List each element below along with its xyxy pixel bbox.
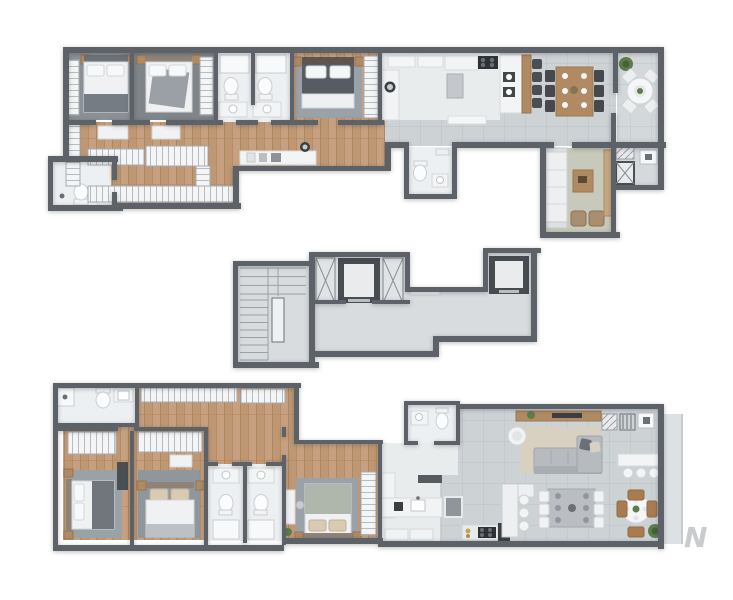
- u-bed1-blanket: [84, 94, 128, 112]
- core-walls-seg-1: [233, 261, 238, 368]
- u-plate-2: [562, 88, 568, 94]
- u-stove-burner-4: [490, 63, 494, 67]
- lower-walls-seg-22: [208, 462, 218, 466]
- u-bath2-shower: [256, 55, 286, 73]
- l-console-stool-2: [636, 468, 646, 478]
- lower-walls-seg-0: [53, 383, 301, 388]
- u-bath2-basin: [263, 105, 271, 113]
- l-kitchen-jar-2: [466, 534, 470, 538]
- u-bath1-toilet: [224, 78, 238, 95]
- l-bedB-fold: [146, 524, 194, 537]
- upper-walls-seg-7: [233, 166, 390, 171]
- u-bath2-toilet: [258, 78, 272, 95]
- l-kitchen-sink: [411, 500, 425, 511]
- l-plate-2: [555, 505, 561, 511]
- core-walls-seg-2: [233, 362, 319, 368]
- l-grill-box-glyph: [643, 417, 650, 424]
- l-console-stool-3: [649, 468, 659, 478]
- l-closet-top: [141, 388, 237, 402]
- lower-walls-seg-11: [434, 441, 460, 445]
- upper-walls-seg-29: [236, 120, 258, 125]
- l-wood-chair-top: [628, 490, 644, 500]
- u-bed2-headboard: [146, 55, 192, 62]
- core-walls-seg-3: [309, 252, 315, 367]
- u-kitchen-cabinet-1: [388, 56, 415, 67]
- u-bed1-bench: [98, 126, 128, 139]
- lower-walls-seg-6: [378, 440, 382, 543]
- l-bath1-toilet: [219, 495, 233, 512]
- l-wood-chair-left: [617, 501, 627, 517]
- l-bedB-closet: [138, 432, 202, 452]
- upper-walls-seg-33: [112, 192, 117, 208]
- lower-walls-seg-2: [53, 545, 284, 551]
- floorplan-canvas: N: [0, 0, 733, 600]
- l-dining-chair-5: [594, 504, 604, 515]
- l-kitchen-island: [445, 497, 462, 517]
- u-armchair-2: [589, 211, 604, 226]
- core-walls-seg-0: [233, 261, 314, 266]
- u-bar-stool-4: [532, 98, 542, 108]
- l-kitchen-jar-1: [466, 529, 471, 534]
- u-bath1-shower: [220, 55, 249, 73]
- u-kitchen-counter-left: [382, 70, 399, 120]
- l-bedA-nightstand-top: [64, 469, 73, 477]
- floorplan-scene: [48, 47, 683, 551]
- u-dining-chair-3: [545, 100, 555, 112]
- u-leftbath-drain: [60, 194, 65, 199]
- u-master-wardrobe: [364, 56, 378, 118]
- l-corner-plant-inner: [652, 528, 659, 535]
- u-bar-stool-2: [532, 72, 542, 82]
- u-kitchen-stove: [478, 56, 498, 69]
- u-master-pillow-2: [330, 66, 350, 78]
- upper-walls-seg-22: [214, 51, 218, 122]
- l-tv: [552, 413, 582, 418]
- l-stove-burner-4: [488, 533, 492, 537]
- u-bed1-pillow-1: [87, 65, 104, 76]
- lower-walls-seg-1: [53, 383, 58, 551]
- lower-walls-seg-13: [658, 404, 664, 549]
- l-wood-chair-right: [647, 501, 657, 517]
- lower-walls-seg-23: [232, 462, 252, 466]
- u-plate-3: [562, 102, 568, 108]
- u-bed2-nightstand-left: [137, 55, 146, 64]
- core-walls-seg-11: [407, 287, 488, 292]
- l-wood-chair-bottom: [628, 527, 644, 537]
- l-island-stool-3: [519, 521, 529, 531]
- upper-walls-seg-25: [251, 51, 255, 105]
- upper-walls-seg-12: [452, 142, 457, 199]
- upper-walls-seg-5: [115, 203, 241, 209]
- l-island-stool-1: [519, 495, 529, 505]
- upper-walls-seg-19: [613, 47, 618, 93]
- right-elevator-door: [499, 290, 519, 293]
- upper-walls-seg-3: [48, 156, 53, 211]
- u-stove-burner-3: [481, 63, 485, 67]
- l-round-plate-2: [634, 516, 639, 521]
- lower-walls-seg-26: [135, 385, 139, 425]
- u-master-nightstand-right: [355, 57, 364, 66]
- u-shaft-box-glyph: [645, 154, 652, 160]
- l-island-stool-2: [519, 508, 529, 518]
- l-hall-floor: [382, 443, 458, 475]
- u-plate-6: [581, 102, 587, 108]
- upper-walls-seg-16: [540, 232, 620, 238]
- l-dining-chair-4: [594, 491, 604, 502]
- upper-walls-seg-32: [112, 156, 117, 180]
- upper-walls-seg-28: [166, 120, 223, 125]
- upper-walls-seg-0: [63, 47, 664, 53]
- u-dining-chair-5: [594, 85, 604, 97]
- u-hall-closet-bottom: [88, 186, 234, 202]
- lower-walls-seg-15: [53, 427, 118, 431]
- lower-walls-seg-5: [282, 538, 383, 544]
- u-kitchen-cabinet-2: [418, 56, 443, 67]
- l-bath1-toilet-tank: [219, 510, 232, 515]
- elevator-door: [348, 299, 370, 302]
- l-sofa-pillow-2: [589, 441, 601, 453]
- u-kitchen-sink-basin: [387, 84, 393, 90]
- u-island-counter: [500, 55, 522, 113]
- l-master-wardrobe: [361, 472, 376, 535]
- right-elevator-interior: [495, 261, 523, 288]
- l-dining-chair-2: [539, 504, 549, 515]
- u-dining-chair-6: [594, 100, 604, 112]
- l-plate-3: [555, 517, 561, 523]
- l-dining-chair-6: [594, 517, 604, 528]
- upper-walls-seg-30: [271, 120, 318, 125]
- l-stove-burner-1: [480, 528, 484, 532]
- lower-walls-seg-24: [266, 462, 282, 466]
- l-terrace-strip: [663, 414, 682, 544]
- l-bedA-headboard: [66, 479, 72, 531]
- u-master-pillow-1: [306, 66, 326, 78]
- l-plate-6: [583, 517, 589, 523]
- lower-walls-seg-17: [130, 431, 134, 545]
- u-dining-chair-1: [545, 70, 555, 82]
- l-kitchen-appliance: [394, 502, 403, 511]
- u-plate-5: [581, 88, 587, 94]
- core-walls-seg-9: [433, 336, 537, 342]
- l-round-armchair-inner: [512, 431, 522, 441]
- l-laundry-basin: [118, 391, 129, 400]
- upper-walls-seg-4: [48, 205, 123, 211]
- core-walls-seg-13: [483, 248, 488, 292]
- lower-walls-seg-12: [456, 404, 663, 409]
- l-master-pillow-1: [309, 520, 326, 531]
- u-centerpiece: [570, 86, 578, 94]
- l-grill-hatch: [602, 414, 617, 430]
- floorplan-image: N: [0, 0, 733, 600]
- u-island-bartop: [522, 55, 531, 113]
- l-midbath-basin: [416, 414, 423, 421]
- l-bedA-dresser: [117, 462, 128, 490]
- upper-walls-seg-20: [611, 113, 616, 238]
- l-bedB-pillow-2: [171, 489, 189, 500]
- upper-walls-seg-17: [658, 47, 664, 190]
- l-stove-burner-3: [480, 533, 484, 537]
- u-hall-counter-item-1: [247, 153, 255, 162]
- l-plate-1: [555, 493, 561, 499]
- l-midbath-toilet-tank: [436, 408, 448, 413]
- lower-walls-seg-18: [204, 427, 208, 545]
- l-island-vertical: [502, 484, 518, 537]
- upper-walls-seg-13: [452, 142, 554, 148]
- l-laundry-drain: [63, 395, 68, 400]
- upper-walls-seg-23: [290, 51, 294, 125]
- u-island-basin-2: [506, 89, 512, 95]
- l-kitchen-shelf: [418, 475, 442, 483]
- u-hall-counter-item-2: [259, 153, 267, 162]
- l-bedB-nightstand-right: [196, 481, 205, 490]
- u-dining-chair-2: [545, 85, 555, 97]
- l-tv-plant: [527, 411, 535, 419]
- upper-walls-seg-14: [572, 142, 666, 148]
- lower-walls-seg-21: [282, 462, 286, 545]
- u-plate-4: [581, 73, 587, 79]
- l-bedB-pillow-1: [150, 489, 168, 500]
- l-laundry-toilet: [96, 392, 110, 408]
- lower-walls-seg-4: [294, 440, 383, 444]
- u-master-fold: [302, 94, 354, 108]
- u-midbath-shelf: [436, 149, 449, 155]
- u-stove-burner-1: [481, 58, 485, 62]
- u-coffee-tray: [578, 176, 587, 183]
- u-bar-stool-3: [532, 85, 542, 95]
- lower-walls-seg-14: [378, 541, 664, 547]
- lower-walls-seg-7: [404, 401, 408, 445]
- u-stove-burner-2: [490, 58, 494, 62]
- u-hall-basin-inner: [303, 145, 308, 150]
- u-bed2-bench: [152, 126, 180, 139]
- l-master-stool: [296, 501, 304, 509]
- u-entry-cabinet: [448, 116, 486, 124]
- l-bedA-closet: [68, 432, 116, 454]
- l-bedB-dresser: [170, 455, 192, 467]
- upper-walls-seg-24: [378, 51, 382, 124]
- upper-walls-seg-21: [130, 51, 134, 122]
- l-bath1-basin: [222, 471, 230, 479]
- l-midbath-toilet: [436, 413, 448, 429]
- u-armchair-1: [571, 211, 586, 226]
- u-sideboard: [604, 150, 612, 216]
- u-midbath-toilet: [414, 165, 427, 181]
- u-bed1-headboard: [84, 55, 128, 62]
- upper-walls-seg-6: [233, 166, 239, 209]
- core-walls-seg-7: [309, 351, 438, 357]
- l-bath2-toilet-tank: [254, 510, 267, 515]
- l-plate-5: [583, 505, 589, 511]
- upper-walls-seg-2: [48, 156, 118, 162]
- u-bed2-wardrobe: [200, 57, 213, 115]
- u-hall-closet-row2: [146, 146, 208, 166]
- lower-walls-seg-25: [243, 466, 247, 543]
- upper-walls-seg-27: [112, 120, 150, 125]
- lower-walls-seg-3: [294, 383, 299, 442]
- upper-walls-seg-26: [63, 120, 96, 125]
- u-bed2-pillow-2: [169, 65, 186, 76]
- u-bar-stool-1: [532, 59, 542, 69]
- core-walls-seg-4: [309, 252, 410, 257]
- l-plate-4: [583, 493, 589, 499]
- core-walls-seg-14: [531, 248, 537, 342]
- u-kitchen-fridge: [447, 74, 463, 98]
- l-closet-top-2: [241, 389, 285, 403]
- upper-walls-seg-31: [338, 120, 384, 125]
- u-bed1-pillow-2: [107, 65, 124, 76]
- l-bedB-nightstand-left: [137, 481, 146, 490]
- upper-walls-seg-1: [63, 47, 69, 159]
- lower-walls-seg-8: [404, 401, 460, 405]
- l-console-table: [618, 454, 662, 466]
- u-dining-chair-4: [594, 70, 604, 82]
- l-bath2-basin: [257, 471, 265, 479]
- l-console-stool-1: [623, 468, 633, 478]
- l-bath2-shower: [248, 520, 274, 539]
- upper-walls-seg-15: [540, 142, 546, 238]
- u-bed2-pillow-1: [149, 65, 166, 76]
- upper-walls-seg-18: [613, 185, 662, 190]
- u-bath1-basin: [229, 105, 237, 113]
- l-terrace-edge: [681, 414, 683, 544]
- l-dining-centerpiece: [568, 504, 576, 512]
- u-plate-1: [562, 73, 568, 79]
- watermark-letter: N: [684, 521, 708, 554]
- u-terrace-table-plant: [637, 88, 643, 94]
- u-sofa-arm-bottom: [546, 222, 567, 228]
- lower-walls-seg-27: [53, 423, 139, 427]
- l-master-pillow-2: [329, 520, 346, 531]
- u-master-headboard: [302, 57, 354, 64]
- l-kitchen-faucet: [416, 496, 420, 500]
- lower-walls-seg-19: [282, 427, 286, 437]
- l-master-blanket: [305, 484, 351, 514]
- l-bedA-blanket: [92, 481, 114, 529]
- l-round-table-plant: [633, 506, 640, 513]
- u-kitchen-counter-top: [445, 56, 478, 70]
- l-stove-burner-2: [488, 528, 492, 532]
- upper-walls-seg-11: [404, 194, 457, 199]
- core-corridor-floor: [407, 292, 531, 336]
- u-midbath-basin: [437, 177, 444, 184]
- u-hall-counter-item-3: [271, 153, 281, 162]
- l-bedA-pillow-2: [74, 503, 84, 520]
- elevator-car-interior: [344, 264, 374, 297]
- l-bedA-pillow-1: [74, 484, 84, 501]
- l-dining-chair-3: [539, 517, 549, 528]
- stair-stringer: [272, 298, 284, 342]
- u-island-basin-1: [506, 74, 512, 80]
- core-walls-seg-6: [372, 300, 410, 304]
- l-kitchen-stool-2: [410, 529, 433, 540]
- l-bath2-toilet: [254, 495, 268, 512]
- core-walls-seg-5: [313, 300, 346, 304]
- l-bath1-shower: [213, 520, 239, 539]
- lower-walls-seg-10: [408, 441, 418, 445]
- l-dining-chair-1: [539, 491, 549, 502]
- l-bedB-headboard: [146, 482, 194, 488]
- l-bedA-nightstand-bottom: [64, 531, 73, 539]
- upper-walls-seg-10: [404, 142, 409, 199]
- lower-walls-seg-16: [134, 427, 208, 431]
- u-terrace-plant-inner: [623, 61, 630, 68]
- l-kitchen-stool-1: [385, 529, 408, 540]
- core-walls-seg-10: [405, 252, 410, 292]
